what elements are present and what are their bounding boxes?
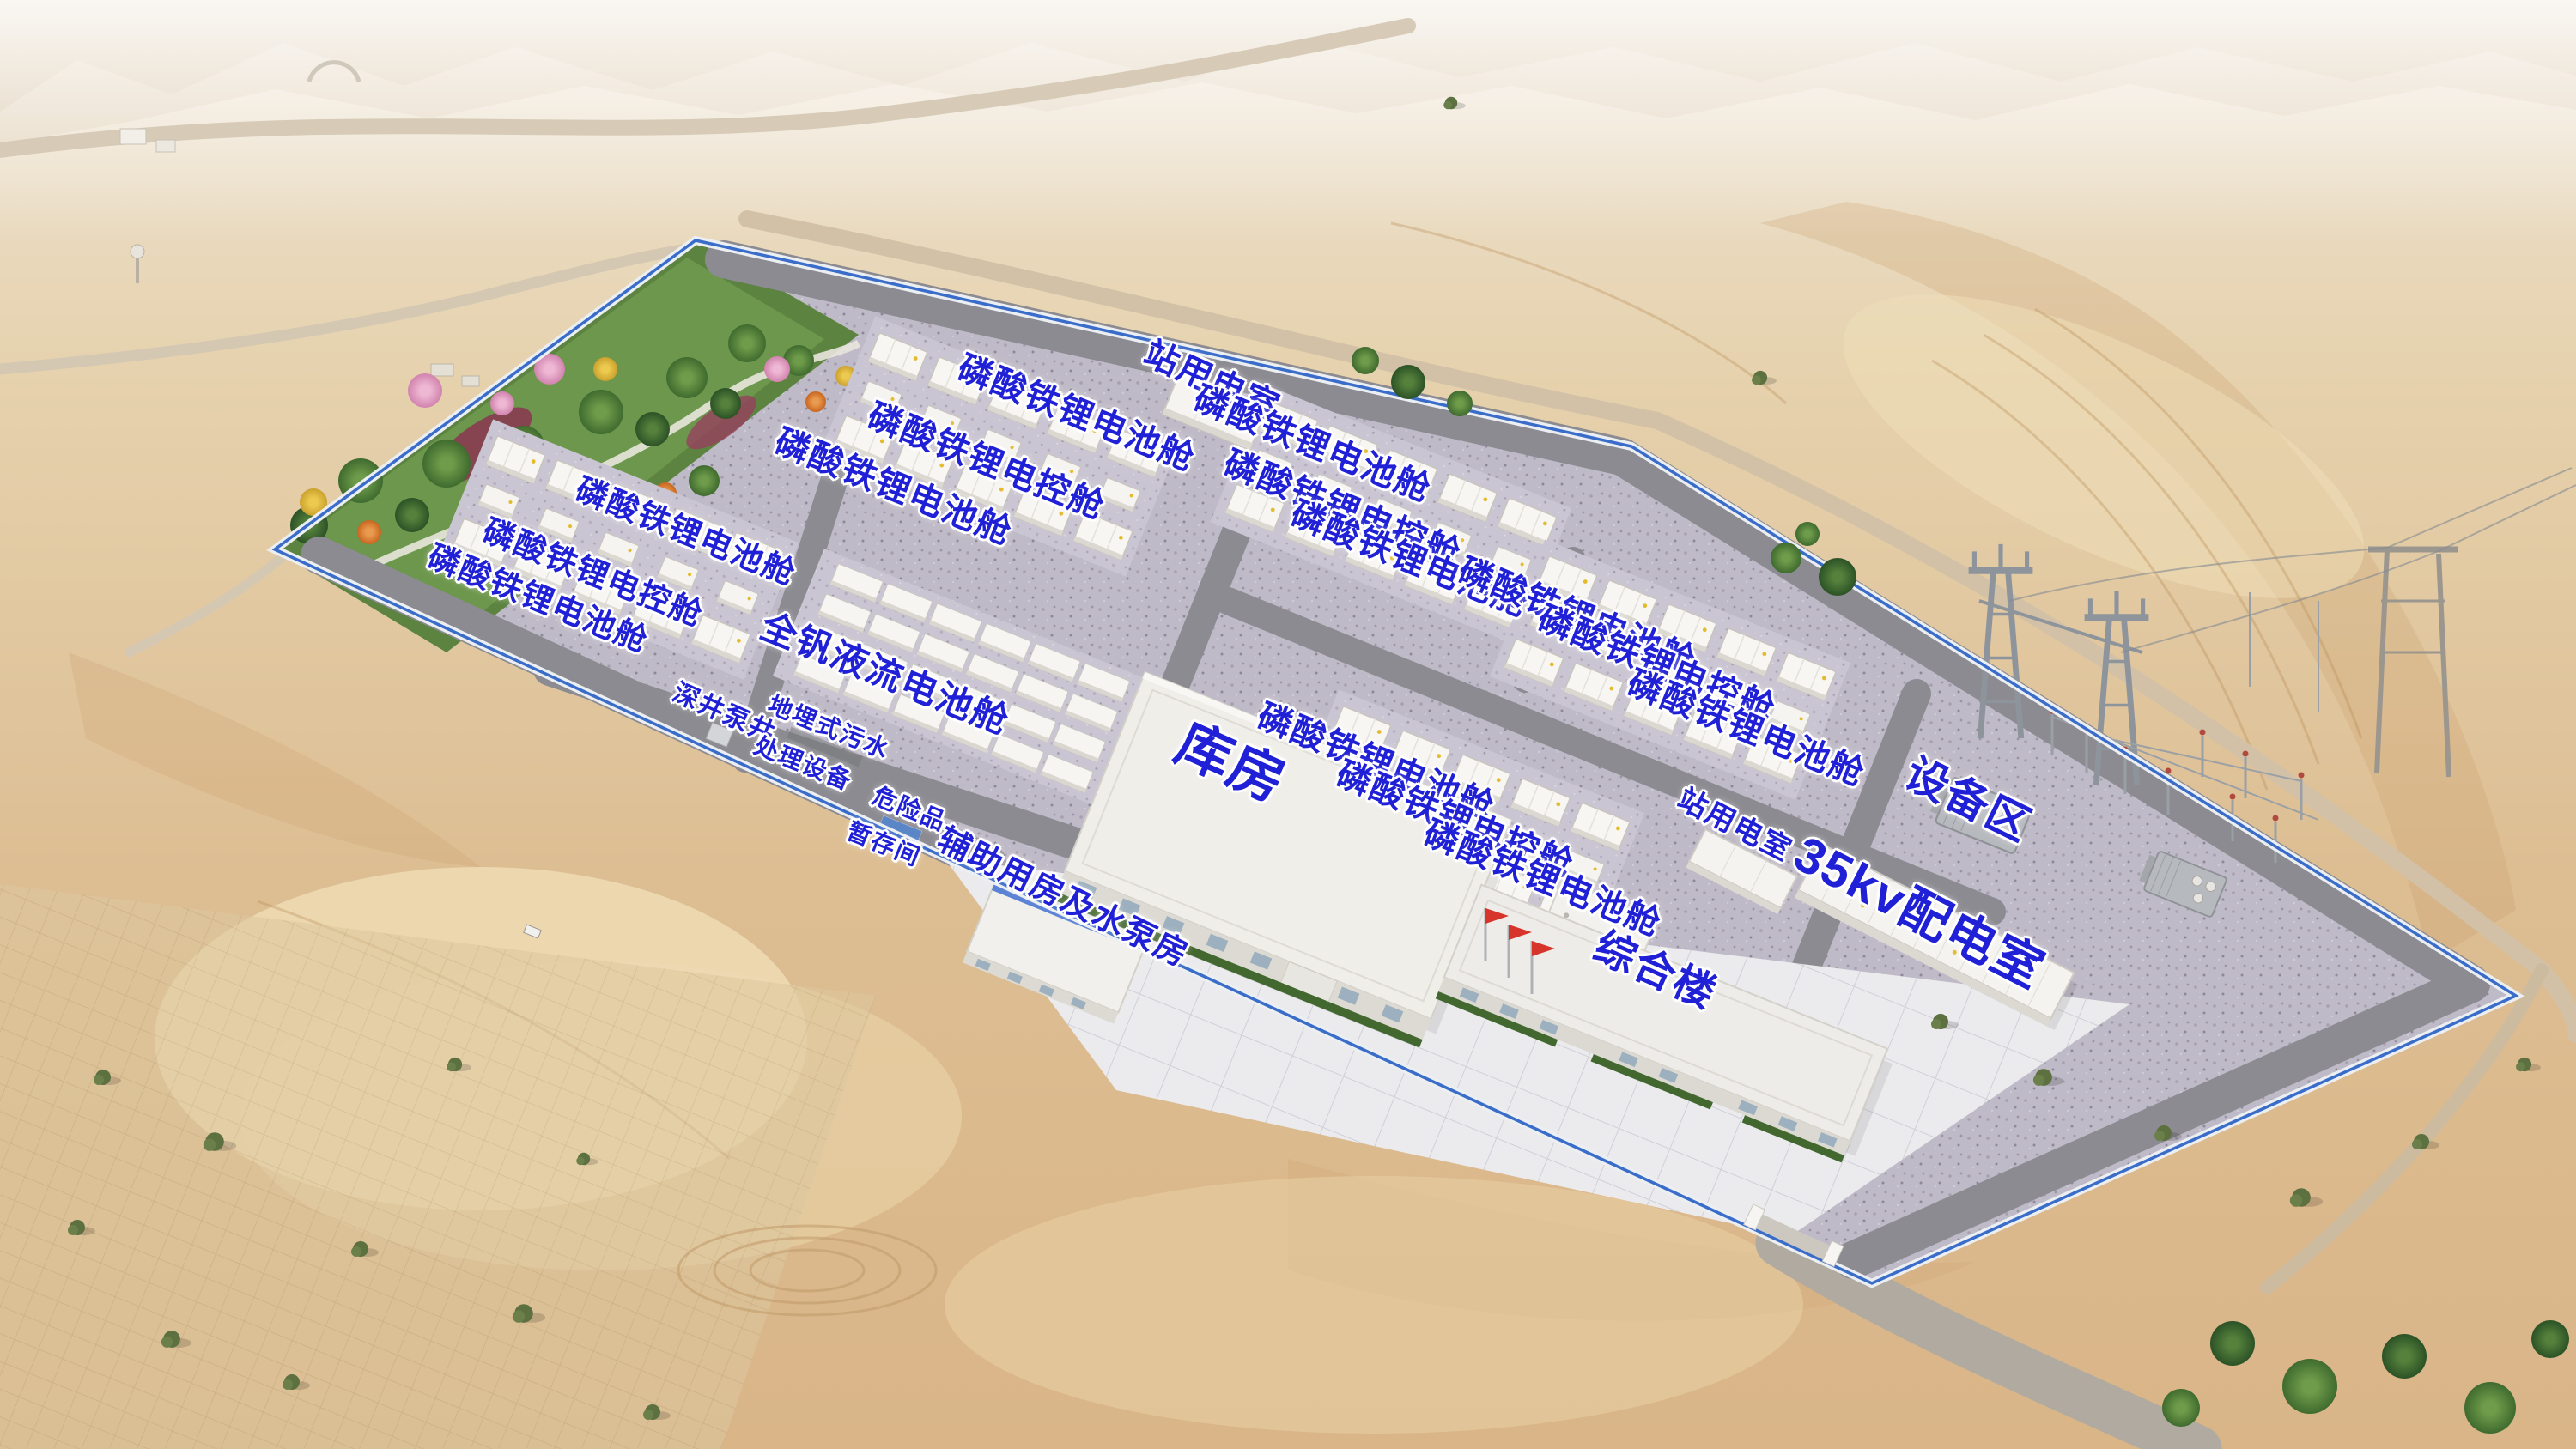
energy-storage-plant-aerial-render: 站用电室磷酸铁锂电池舱磷酸铁锂电控舱磷酸铁锂电池舱磷酸铁锂电池舱磷酸铁锂电控舱磷… bbox=[0, 0, 2576, 1449]
scene-art bbox=[0, 0, 2576, 1449]
